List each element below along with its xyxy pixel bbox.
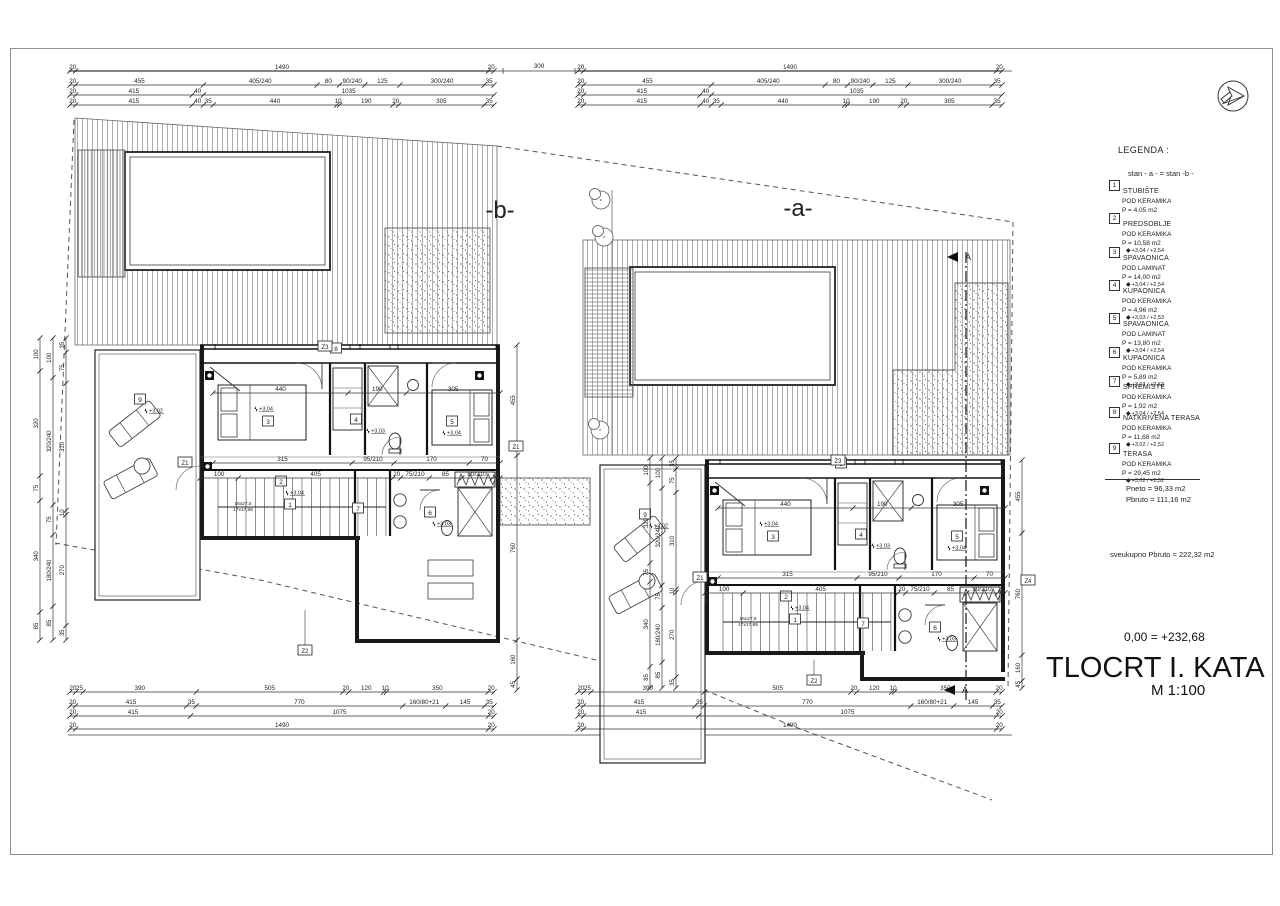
dim-label: 10 [890,685,898,692]
plan-shape [585,268,633,397]
level-mark: +3,03 [433,521,453,528]
room-number: 3 [771,534,775,541]
dim-label: 35 [994,98,1002,105]
dim-label: 20 [69,722,77,729]
dim-label: 90/240 [343,78,363,85]
plan-shape [78,150,125,277]
dim-label: 160/80+21 [917,699,947,706]
dim-label: 40 [194,88,202,95]
room-number: 5 [955,534,959,541]
unit-a-label: -a- [783,195,812,222]
plan-shape [705,651,865,655]
page-title: TLOCRT I. KATA [1046,652,1265,685]
dim-label: 40 [194,98,202,105]
dim-label: 20 [898,586,906,593]
plan-shape [589,419,600,430]
dim-label: 180/240 [47,559,53,581]
dim-label: 170 [426,456,437,463]
plan-shape [600,465,705,763]
dim-label: 300/240 [939,78,962,85]
plan-shape [205,464,209,468]
level-mark: +3,04 [443,430,463,437]
room-number: 4 [354,417,358,424]
level-mark: +3,04 [791,605,811,612]
detail-marker: Z2 [301,649,309,655]
plan-shape [894,564,906,568]
detail-marker: Z4 [1024,579,1032,585]
legend-item-number: 1 [1109,180,1120,191]
plan-shape [389,433,401,449]
unit-a-building: 16x27,517x17,889+3,023+3,044+3,035+3,042… [600,458,1008,763]
plan-shape [710,579,714,583]
room-number: 7 [861,621,865,628]
dim-label: 20 [577,64,585,71]
dim-label: 100 [656,467,662,478]
dim-label: 85 [656,671,662,678]
dim-label: 75 [656,592,662,599]
plan-shape [432,390,492,445]
level-mark-icon [255,406,258,412]
dim-label: 455 [134,78,145,85]
level-mark-icon [938,636,941,642]
dim-label: 270 [60,564,66,575]
dim-label: 505 [264,685,275,692]
dim-label: 190 [877,501,888,508]
dim-label: 40 [702,88,710,95]
dim-label: 100 [214,471,225,478]
detail-marker: Z1 [181,461,189,467]
tree-icon [590,189,611,210]
plan-shape [590,189,601,200]
detail-marker: Z2 [810,679,818,685]
dim-label: 320/240 [656,525,662,547]
dim-label: 20 [392,98,400,105]
dim-label: 455 [642,78,653,85]
legend-item-floor: POD LAMINAT [1122,265,1269,274]
room-number: 9 [643,512,647,519]
dim-label: 145 [968,699,979,706]
dim-label: 415 [634,699,645,706]
section-label: A [962,685,968,695]
dim-label: 35 [713,98,721,105]
legend-item-number: 6 [1109,347,1120,358]
dim-label: 315 [277,456,288,463]
dim-label: 190 [361,98,372,105]
plan-shape [355,639,500,643]
dim-label: 20 [850,685,858,692]
dim-label: 440 [270,98,281,105]
dim-label: 35 [188,699,196,706]
dim-label: 125 [885,78,896,85]
dim-label: 20 [577,78,585,85]
dim-label: 85 [34,622,40,629]
dim-label: 305 [436,98,447,105]
dim-label: 340 [644,619,650,630]
dim-label: 20 [493,471,501,478]
dim-label: 160/80+21 [409,699,439,706]
plan-shape [200,536,360,540]
level-mark-icon [872,543,875,549]
dim-label: 35 [670,679,676,686]
plan-shape [474,419,489,442]
plan-shape [899,631,911,643]
dim-label: 35 [994,699,1002,706]
plan-shape [913,495,924,506]
dim-label: 20 [577,709,585,716]
legend-item-floor: POD KERAMIKA [1122,394,1269,403]
plan-shape [500,478,590,525]
stair-note: 17x17,88 [233,507,253,513]
dim-label: 270 [670,629,676,640]
room-number: 7 [356,506,360,513]
dim-label: 80 [325,78,333,85]
dim-label: 310 [60,441,66,452]
level-mark: +3,03 [872,543,892,550]
plan-shape [221,388,237,411]
dim-label: 305 [448,386,459,393]
legend-item-number: 9 [1109,443,1120,454]
dim-label: 20 [69,98,77,105]
room-number: 3 [266,419,270,426]
dim-label: 120 [361,685,372,692]
detail-marker: Z3 [834,459,842,465]
plan-shape [705,460,709,655]
plan-shape [726,529,742,552]
dim-label: 760 [511,542,517,553]
dim-label: 320 [34,418,40,429]
dim-label: 1490 [783,722,798,729]
dim-label: 75 [60,364,66,371]
legend-item-name: NATKRIVENA TERASA [1123,415,1200,422]
plan-shape [389,449,401,453]
dim-label: 40 [702,98,710,105]
dim-label: 405/240 [249,78,272,85]
dim-label: 170 [931,571,942,578]
dim-label: 405/240 [757,78,780,85]
dim-label: 80 [833,78,841,85]
legend-item-area: P = 29,45 m2 [1122,470,1269,479]
plan-shape [982,488,986,492]
dim-label: 35 [486,699,494,706]
plan-shape [394,516,406,528]
plan-shape [355,540,359,643]
plan-shape [428,560,473,576]
datum-level: 0,00 = +232,68 [1124,630,1205,644]
plan-shape [221,414,237,437]
dim-label: 300/240 [431,78,454,85]
dim-label: 1035 [342,88,357,95]
plan-shape [56,120,74,545]
room-number: 2 [279,479,283,486]
dim-label: 85 [47,619,53,626]
legend-item: 1STUBIŠTEPOD KERAMIKAP = 4,05 m2 [1109,180,1269,215]
dim-label: 415 [128,709,139,716]
plan-shape [599,429,601,431]
dim-label: 85 [442,471,450,478]
plan-shape [385,228,490,333]
plan-shape [712,488,716,492]
dim-label: 340 [34,551,40,562]
dim-label: 85 [644,673,650,680]
dim-label: 20 [69,88,77,95]
plan-shape [979,508,994,531]
plan-shape [603,236,605,238]
legend-heading: LEGENDA : [1118,145,1169,155]
dim-label: 440 [275,386,286,393]
level-mark: +3,04 [286,490,306,497]
dim-label: 20 [577,98,585,105]
plan-shape [600,199,602,201]
legend-item-name: KUPAONICA [1123,288,1166,295]
dim-label: 20 [488,64,496,71]
totals-rule [1105,479,1200,480]
room-number: 9 [138,397,142,404]
dim-label: 35 [60,629,66,636]
plan-shape [496,345,500,643]
level-mark: +3,03 [367,428,387,435]
dim-label: 100 [34,349,40,360]
plan-shape [477,373,481,377]
plan-shape [937,478,961,502]
plan-shape [937,505,997,560]
drawing-sheet: 16x27,517x17,889+3,023+3,044+3,035+3,042… [0,0,1280,906]
dim-label: 75/210 [405,471,425,478]
dim-label: 405 [310,471,321,478]
plan-shape [200,345,204,540]
room-number: 4 [859,532,863,539]
legend-item-area: P = 11,68 m2 [1122,434,1269,443]
level-mark: +3,04 [255,406,275,413]
legend-item-number: 3 [1109,247,1120,258]
dim-label: 20 [998,586,1006,593]
legend-item-name: SPAVAONICA [1123,321,1169,328]
unit-b-label: -b- [485,197,514,224]
dim-label: 35 [994,78,1002,85]
legend-item-name: KUPAONICA [1123,355,1166,362]
dim-label: 415 [129,98,140,105]
legend-item-floor: POD KERAMIKA [1122,198,1269,207]
dim-label: 390 [134,685,145,692]
pbruto-value: Pbruto = 111,16 m2 [1126,495,1191,504]
dim-label: 95/210 [868,571,888,578]
dim-label: 305 [953,501,964,508]
stair-note: 16x27,5 [739,616,756,622]
dim-label: 190 [372,386,383,393]
dim-label: 180/240 [656,624,662,646]
legend-item-floor: POD KERAMIKA [1122,231,1269,240]
room-number: 5 [450,419,454,426]
plan-shape [432,363,456,387]
legend-item-name: TERASA [1123,451,1152,458]
dim-label: 10 [335,98,343,105]
dim-label: 20 [342,685,350,692]
dim-label: 415 [126,699,137,706]
dim-label: 300 [534,63,545,70]
dim-label: 35 [60,341,66,348]
room-number: 1 [793,617,797,624]
dim-label: 190 [869,98,880,105]
dim-label: 100 [644,465,650,476]
dim-label: 95/210 [363,456,383,463]
legend-item-number: 2 [1109,213,1120,224]
dim-label: 415 [637,98,648,105]
legend-item-floor: POD KERAMIKA [1122,365,1269,374]
dim-label: 35 [205,98,213,105]
level-mark-icon [443,430,446,436]
dim-label: 75 [670,477,676,484]
plan-shape [125,152,330,270]
dim-label: 505 [772,685,783,692]
plan-shape [726,503,742,526]
dim-label: 20 [488,722,496,729]
dim-label: 10 [60,509,66,516]
legend-item-name: SPAVAONICA [1123,255,1169,262]
dim-label: 100 [47,352,53,363]
dim-label: 350 [432,685,443,692]
dim-label: 20 [393,471,401,478]
plan-shape [474,393,489,416]
room-number: 6 [933,625,937,632]
legend-item-number: 8 [1109,407,1120,418]
dim-label: 125 [377,78,388,85]
plan-shape [593,226,604,237]
dim-label: 35 [486,78,494,85]
dim-label: 160 [511,654,517,665]
legend-item-name: PREDSOBLJE [1123,221,1171,228]
plan-shape [630,267,835,385]
dim-label: 35 [696,699,704,706]
plan-shape [899,609,911,621]
floor-plan-drawing: 16x27,517x17,889+3,023+3,044+3,035+3,042… [0,0,1280,906]
dim-label: 10 [843,98,851,105]
dim-label: 405 [815,586,826,593]
dim-label: 1075 [332,709,347,716]
dim-label: 45 [1016,680,1022,687]
dim-label: 315 [782,571,793,578]
level-mark-icon [760,521,763,527]
dim-label: 75 [34,484,40,491]
dim-label: 440 [778,98,789,105]
dim-label: 45 [511,681,517,688]
level-mark-icon [948,545,951,551]
pneto-value: Pneto = 96,33 m2 [1126,484,1185,493]
dim-label: 20 [577,88,585,95]
plan-shape [210,367,240,391]
dim-label: 760 [1016,588,1022,599]
room-number: 1 [288,502,292,509]
dim-label: 770 [802,699,813,706]
dim-label: 145 [460,699,471,706]
dim-label: 20 [900,98,908,105]
dim-label: 25 [76,685,84,692]
legend-item-floor: POD KERAMIKA [1122,461,1269,470]
dim-label: 20 [996,709,1004,716]
drawing-scale: M 1:100 [1151,682,1205,699]
stair-note: 16x27,5 [234,501,251,507]
legend-item-name: STUBIŠTE [1123,188,1159,195]
dim-label: 120 [869,685,880,692]
detail-marker: Z3 [321,345,329,351]
dim-label: 20 [577,722,585,729]
stair-note: 17x17,88 [738,622,758,628]
level-mark-icon [791,605,794,611]
dim-label: 455 [1016,491,1022,502]
unit-b-building: 16x27,517x17,889+3,023+3,044+3,035+3,042… [95,343,503,643]
total-gross-area: sveukupno Pbruto = 222,32 m2 [1110,550,1214,559]
dim-label: 75/210 [910,586,930,593]
level-mark-icon [367,428,370,434]
legend-item-floor: POD KERAMIKA [1122,298,1269,307]
dim-label: 75 [47,516,53,523]
dim-label: 440 [780,501,791,508]
dim-label: 85 [947,586,955,593]
plan-shape [394,494,406,506]
section-label: A [965,252,971,262]
dim-label: 100 [719,586,730,593]
dim-label: 20 [996,685,1004,692]
legend-item-floor: POD LAMINAT [1122,331,1269,340]
dim-label: 20 [488,709,496,716]
dim-label: 20 [996,64,1004,71]
plan-shape [428,583,473,599]
dim-label: 1490 [783,64,798,71]
dim-label: 160 [1016,662,1022,673]
dim-label: 310 [670,535,676,546]
level-mark-icon [286,490,289,496]
level-mark: +3,03 [938,636,958,643]
dim-label: 1075 [840,709,855,716]
dim-label: 320/240 [47,430,53,452]
dim-label: 415 [129,88,140,95]
detail-marker: Z1 [696,576,704,582]
dim-label: 35 [670,459,676,466]
plan-shape [207,373,211,377]
level-mark: +3,04 [948,545,968,552]
dim-label: 80/210 [972,586,992,593]
plan-shape [979,534,994,557]
dim-label: 20 [69,709,77,716]
room-number: 6 [428,510,432,517]
plan-shape [860,677,1005,681]
plan-shape [1001,460,1005,672]
plan-shape [497,146,1013,222]
dim-label: 305 [944,98,955,105]
dim-label: 1490 [275,64,290,71]
legend-note: stan - a - = stan -b - [1128,169,1194,178]
dim-label: 70 [481,456,489,463]
plan-shape [408,380,419,391]
north-arrow-icon [1218,81,1248,111]
dim-label: 20 [996,722,1004,729]
dim-label: 75 [644,568,650,575]
plan-shape [715,482,745,506]
legend-item-number: 4 [1109,280,1120,291]
dim-label: 25 [584,685,592,692]
dim-label: 1035 [850,88,865,95]
dim-label: 770 [294,699,305,706]
room-number: 8 [334,346,338,353]
level-mark: +3,04 [760,521,780,528]
dim-label: 20 [69,78,77,85]
dim-label: 20 [577,699,585,706]
dim-label: 415 [636,709,647,716]
plan-shape [134,458,150,474]
dim-label: 20 [69,64,77,71]
legend-item-floor: POD KERAMIKA [1122,425,1269,434]
plan-shape [894,548,906,564]
level-mark-icon [433,521,436,527]
dim-label: 1490 [275,722,290,729]
